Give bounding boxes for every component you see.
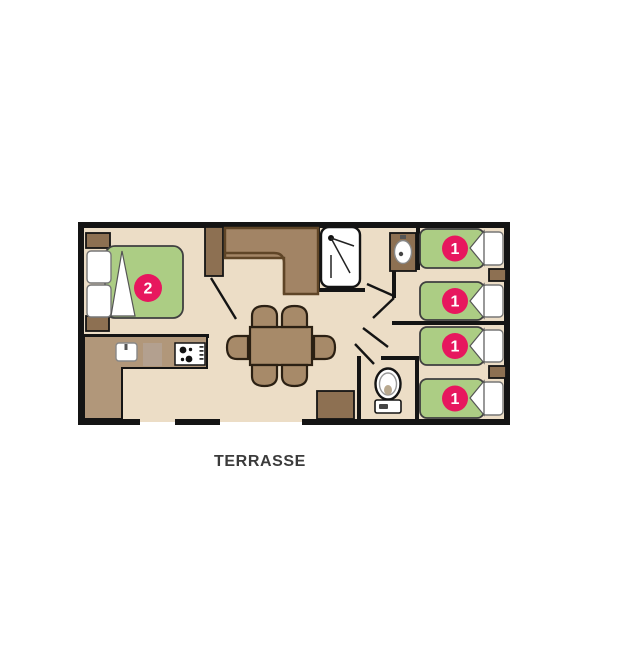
- pillow: [482, 382, 503, 415]
- chair: [314, 336, 335, 359]
- cabinet: [317, 391, 354, 419]
- wall-toilet-right: [415, 358, 419, 419]
- pillow: [87, 285, 111, 317]
- single-bed: 1: [420, 229, 503, 268]
- wall-bathroom-bottom: [316, 288, 365, 292]
- shower-icon: [321, 227, 360, 287]
- pillow: [482, 232, 503, 265]
- dining-table: [250, 327, 312, 365]
- single-bed: 1: [420, 379, 503, 418]
- prep-board: [143, 343, 162, 366]
- wall-bottom-segment: [175, 419, 220, 425]
- wall-washbasin: [392, 268, 396, 298]
- single-bed: 1: [420, 327, 503, 365]
- pillow: [87, 251, 111, 283]
- bed-capacity-label: 1: [451, 241, 460, 258]
- nightstand: [489, 366, 506, 378]
- terrace-label: TERRASSE: [170, 453, 350, 471]
- single-bed: 1: [420, 282, 503, 320]
- stove-icon: [175, 343, 205, 365]
- chair: [282, 365, 307, 386]
- pillow: [482, 285, 503, 317]
- page: { "labels": { "terrace": "TERRASSE" }, "…: [0, 0, 617, 654]
- bed-capacity-label: 2: [144, 281, 153, 298]
- bed-capacity-label: 1: [451, 391, 460, 408]
- bed-capacity-label: 1: [451, 339, 460, 356]
- washbasin-icon: [390, 233, 416, 271]
- chair: [252, 365, 277, 386]
- chair: [282, 306, 307, 327]
- nightstand: [489, 269, 506, 281]
- toilet-icon: [375, 369, 401, 414]
- nightstand: [86, 233, 110, 248]
- wall-bedrooms-divider: [392, 321, 510, 325]
- toilet-room: [375, 369, 401, 414]
- bed-capacity-label: 1: [451, 294, 460, 311]
- chair: [227, 336, 248, 359]
- wall-toilet-top: [381, 356, 419, 360]
- wall-toilet-left: [357, 356, 361, 419]
- chair: [252, 306, 277, 327]
- pillow: [482, 330, 503, 362]
- wardrobe: [205, 227, 223, 276]
- floor-plan: 2: [78, 222, 510, 425]
- sink-tap: [125, 344, 128, 350]
- nightstand: [86, 316, 109, 331]
